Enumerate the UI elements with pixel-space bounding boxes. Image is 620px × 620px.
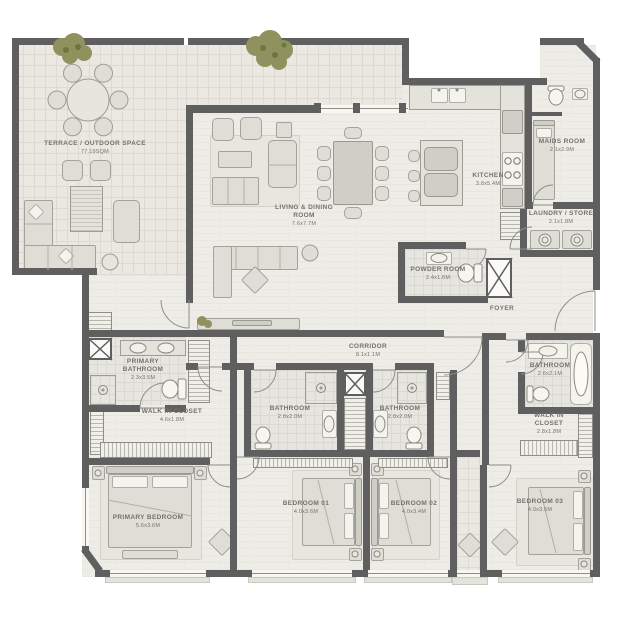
window [316, 105, 408, 113]
wall [520, 209, 527, 257]
wall [457, 450, 480, 457]
wall [526, 333, 600, 340]
wall [244, 370, 251, 457]
terrace-armchair [62, 160, 83, 181]
wall [527, 202, 533, 209]
dining-chair [375, 146, 389, 161]
wall [363, 450, 370, 577]
bar-stool [408, 150, 420, 162]
wall [527, 250, 600, 257]
vanity [373, 410, 388, 438]
balcony-sill [248, 577, 356, 583]
wall [363, 450, 434, 457]
vanity [528, 343, 568, 359]
wall [395, 363, 434, 370]
wall [186, 363, 198, 370]
closet-wardrobe [100, 442, 212, 458]
dining-table [333, 141, 373, 205]
window-mullion [314, 103, 321, 113]
window [252, 570, 352, 577]
shaft-box [88, 338, 112, 360]
terrace-striped-mat [70, 186, 103, 232]
wall [553, 202, 600, 209]
coffee-table [218, 151, 252, 168]
bed-pillow [152, 476, 188, 488]
chaise-lounge [268, 140, 297, 188]
bed-bench [122, 550, 178, 559]
dining-chair [317, 186, 331, 201]
balcony-sill [498, 577, 593, 583]
wall [186, 107, 193, 303]
fridge [502, 110, 523, 134]
tv [232, 320, 272, 326]
dining-chair [344, 127, 362, 139]
wall [82, 458, 210, 465]
bed-pillow [379, 513, 389, 539]
stove [502, 152, 523, 186]
shower [90, 375, 116, 405]
dining-chair [375, 186, 389, 201]
wall [88, 405, 140, 412]
bed-pillow [112, 476, 148, 488]
dining-chair [375, 166, 389, 181]
wardrobe-column [188, 340, 210, 403]
wall [540, 38, 584, 45]
armchair [240, 117, 262, 140]
bed-headboard [106, 466, 194, 474]
island-seat [424, 173, 458, 197]
wall [450, 370, 457, 577]
wall [12, 38, 19, 275]
bed-headboard [371, 478, 378, 546]
balcony-sill [105, 577, 210, 583]
maids-bed-pillow [536, 128, 552, 138]
window [457, 570, 480, 577]
wall [398, 242, 466, 249]
wall [525, 78, 532, 209]
kitchen-sink [431, 88, 448, 103]
entrance-opening [593, 290, 600, 333]
kitchen-sink [449, 88, 466, 103]
floor-plan: TERRACE / OUTDOOR SPACE 77.19SQM LIVING … [0, 0, 620, 620]
duct [344, 398, 366, 450]
window [502, 570, 590, 577]
wall [230, 337, 237, 577]
bar-stool [408, 190, 420, 202]
wall [518, 407, 600, 414]
nightstand [578, 470, 591, 483]
window-mullion [353, 103, 360, 113]
dining-chair [317, 146, 331, 161]
window [82, 488, 89, 546]
closet3-wardrobe [520, 440, 578, 456]
shaft-box [344, 372, 366, 396]
wall [593, 333, 600, 577]
nightstand [349, 548, 362, 561]
duct [436, 372, 450, 400]
maids-sink [572, 88, 588, 100]
shaft-box [486, 258, 512, 298]
dining-chair [344, 207, 362, 219]
wall [186, 105, 318, 113]
wall [427, 370, 434, 457]
wall [12, 38, 408, 45]
wall [518, 372, 525, 407]
interior-floor [540, 45, 596, 85]
terrace-lounge-chair [113, 200, 140, 243]
terrace-armchair [90, 160, 111, 181]
corner-sofa [213, 246, 232, 298]
bed-headboard [355, 478, 362, 546]
sofa [212, 177, 259, 205]
bed-pillow [573, 491, 583, 519]
island-seat [424, 147, 458, 171]
wall [518, 340, 525, 352]
kitchen-cabinet [502, 188, 523, 207]
wall-break [184, 38, 188, 45]
closet3-shelving [578, 410, 593, 458]
nightstand [92, 466, 105, 480]
bed-headboard [584, 487, 591, 555]
bedroom1-wardrobe [253, 458, 353, 468]
washing-machine [562, 230, 592, 249]
window [368, 570, 448, 577]
nightstand [371, 548, 384, 561]
bed-pillow [379, 483, 389, 509]
wall [482, 333, 489, 465]
nightstand [194, 466, 207, 480]
powder-sink-counter [426, 252, 452, 265]
shower [397, 372, 427, 404]
wall [480, 465, 487, 570]
washing-machine [530, 230, 560, 249]
vanity-counter [120, 340, 186, 356]
wall [337, 370, 344, 457]
armchair [212, 118, 234, 141]
wall [250, 450, 370, 457]
bed-pillow [344, 483, 354, 509]
bedroom2-wardrobe [378, 458, 448, 468]
wall [165, 405, 186, 412]
balcony-sill [364, 577, 452, 583]
dining-chair [317, 166, 331, 181]
vanity [322, 410, 337, 438]
wall [398, 296, 488, 303]
wall [532, 112, 562, 116]
side-table [276, 122, 292, 138]
bar-stool [408, 170, 420, 182]
wall [276, 363, 373, 370]
balcony-sill [452, 577, 488, 585]
wall [366, 370, 373, 457]
bathtub [570, 343, 592, 405]
terrace-floor [186, 43, 408, 107]
wall [82, 330, 444, 337]
wall [398, 242, 405, 303]
wall [222, 363, 254, 370]
shower [305, 372, 337, 404]
maids-bed-headboard [533, 120, 555, 126]
bed-pillow [573, 523, 583, 551]
window [110, 570, 206, 577]
bed-pillow [344, 513, 354, 539]
window-mullion [399, 103, 406, 113]
